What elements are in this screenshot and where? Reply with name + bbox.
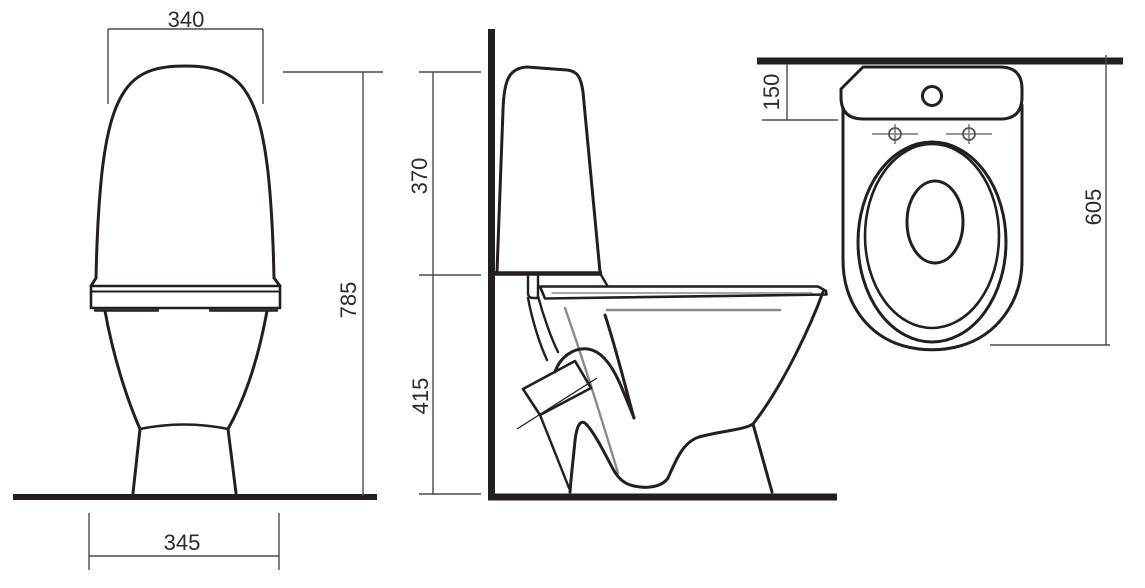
top-seat-inner-ring	[865, 144, 999, 328]
side-tank-front-connector	[600, 273, 608, 287]
front-seat-band	[91, 286, 280, 308]
front-view	[13, 66, 377, 497]
front-bowl-pedestal-joint	[140, 425, 228, 430]
side-bowl-foot-edge	[753, 424, 772, 492]
technical-drawing-page: 340 785 345	[0, 0, 1145, 588]
front-pedestal-right-edge	[228, 429, 236, 493]
side-seat-hinge	[528, 276, 538, 298]
side-view	[488, 29, 837, 498]
front-tank-dome	[96, 66, 274, 278]
side-view-dimensions	[419, 72, 481, 495]
side-bowl-underside	[570, 422, 753, 492]
mounting-hole-left-crosshair	[872, 124, 918, 144]
top-view	[757, 61, 1123, 350]
dim-415-label: 415	[408, 378, 433, 415]
front-pedestal-left-edge	[133, 429, 140, 493]
side-trap-weir-outer	[555, 349, 634, 418]
dim-150-label: 150	[759, 74, 784, 111]
top-water-oval	[907, 181, 963, 263]
dim-785-label: 785	[336, 282, 361, 319]
front-bowl-left-edge	[105, 311, 140, 429]
side-flush-channel-left	[528, 298, 547, 360]
mounting-hole-right-crosshair	[946, 124, 992, 144]
side-outlet-to-floor	[540, 415, 569, 488]
dim-345-label: 345	[164, 530, 201, 555]
side-bowl-front-edge	[753, 292, 823, 424]
dim-370-label: 370	[407, 158, 432, 195]
toilet-drawing-svg: 340 785 345	[0, 0, 1145, 588]
top-tank	[841, 67, 1022, 119]
dim-605-label: 605	[1081, 189, 1106, 226]
dim-340-label: 340	[168, 7, 205, 32]
top-seat-outer-ring	[858, 142, 1006, 342]
side-tank	[497, 67, 600, 272]
front-bowl-right-edge	[228, 311, 267, 429]
